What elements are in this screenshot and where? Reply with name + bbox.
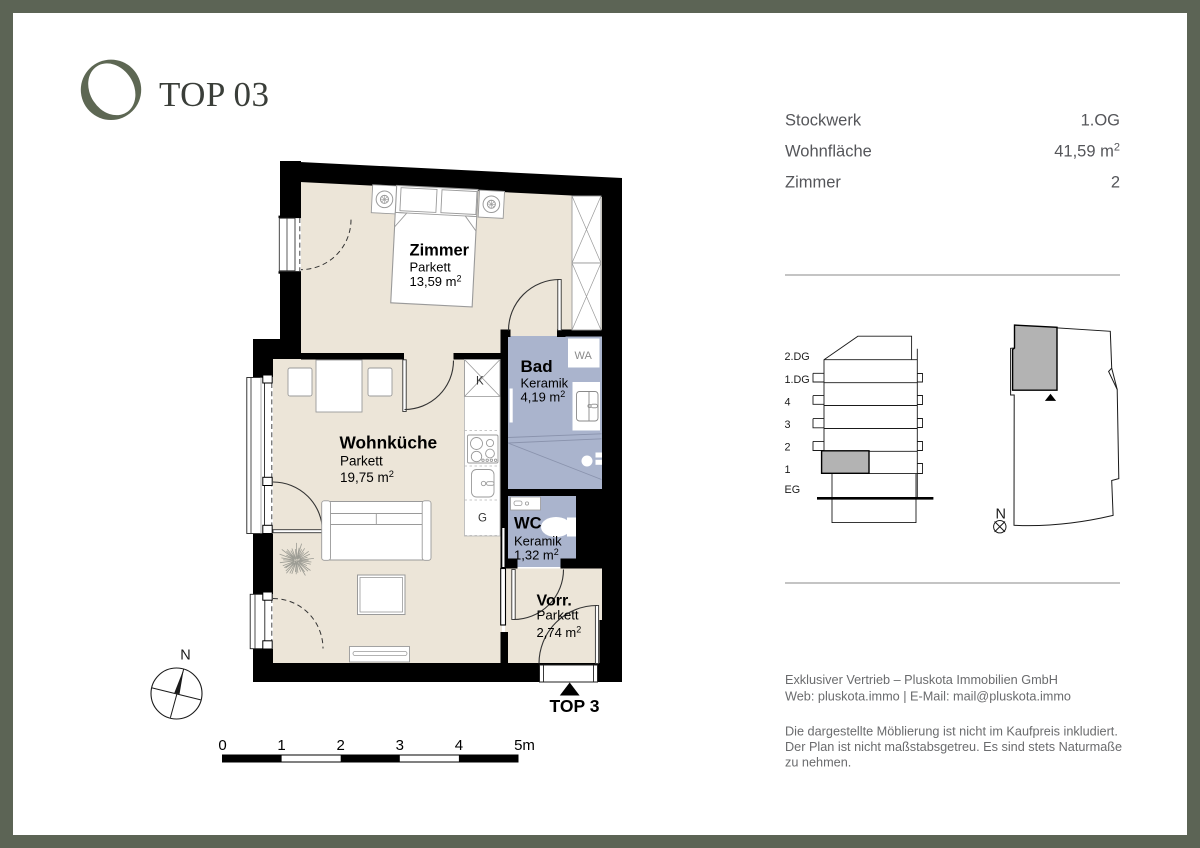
svg-text:WA: WA <box>575 350 593 362</box>
svg-text:Die dargestellte Möblierung is: Die dargestellte Möblierung ist nicht im… <box>785 725 1118 739</box>
svg-text:Wohnfläche: Wohnfläche <box>785 143 872 161</box>
svg-text:K: K <box>476 376 484 388</box>
svg-text:Parkett: Parkett <box>340 454 383 469</box>
svg-text:zu nehmen.: zu nehmen. <box>785 756 851 770</box>
svg-text:EG: EG <box>785 484 801 496</box>
svg-text:TOP 3: TOP 3 <box>550 696 600 716</box>
svg-text:Parkett: Parkett <box>410 260 452 275</box>
svg-text:19,75 m2: 19,75 m2 <box>340 469 394 485</box>
svg-text:Bad: Bad <box>521 357 553 376</box>
svg-text:Zimmer: Zimmer <box>785 174 841 192</box>
svg-text:1,32 m2: 1,32 m2 <box>514 547 559 563</box>
svg-text:N: N <box>996 507 1006 523</box>
svg-text:WC: WC <box>514 515 542 533</box>
svg-text:41,59 m2: 41,59 m2 <box>1054 142 1120 161</box>
svg-text:Stockwerk: Stockwerk <box>785 112 862 130</box>
svg-text:Der Plan ist nicht maßstabsget: Der Plan ist nicht maßstabsgetreu. Es si… <box>785 740 1122 754</box>
svg-text:2,74 m2: 2,74 m2 <box>537 625 582 641</box>
svg-text:1.OG: 1.OG <box>1081 112 1120 130</box>
svg-text:Exklusiver Vertrieb – Pluskota: Exklusiver Vertrieb – Pluskota Immobilie… <box>785 673 1058 687</box>
svg-text:Web: pluskota.immo | E-Mail: m: Web: pluskota.immo | E-Mail: mail@plusko… <box>785 690 1071 704</box>
svg-text:5m: 5m <box>514 737 535 754</box>
svg-text:4: 4 <box>455 737 463 754</box>
svg-text:4: 4 <box>785 397 791 409</box>
svg-text:2: 2 <box>1111 174 1120 192</box>
svg-text:1: 1 <box>277 737 285 754</box>
svg-text:Parkett: Parkett <box>537 608 579 623</box>
svg-text:2: 2 <box>337 737 345 754</box>
svg-text:3: 3 <box>785 419 791 431</box>
svg-text:Wohnküche: Wohnküche <box>340 433 438 453</box>
svg-text:1: 1 <box>785 464 791 476</box>
svg-text:3: 3 <box>396 737 404 754</box>
svg-text:2.DG: 2.DG <box>785 351 810 363</box>
svg-text:4,19 m2: 4,19 m2 <box>521 389 566 405</box>
svg-text:G: G <box>478 513 487 525</box>
svg-text:1.DG: 1.DG <box>785 374 810 386</box>
svg-text:13,59 m2: 13,59 m2 <box>410 273 462 289</box>
svg-text:Zimmer: Zimmer <box>410 242 470 260</box>
svg-text:0: 0 <box>218 737 226 754</box>
svg-text:TOP 03: TOP 03 <box>159 75 269 114</box>
svg-text:2: 2 <box>785 442 791 454</box>
svg-text:N: N <box>180 648 190 664</box>
